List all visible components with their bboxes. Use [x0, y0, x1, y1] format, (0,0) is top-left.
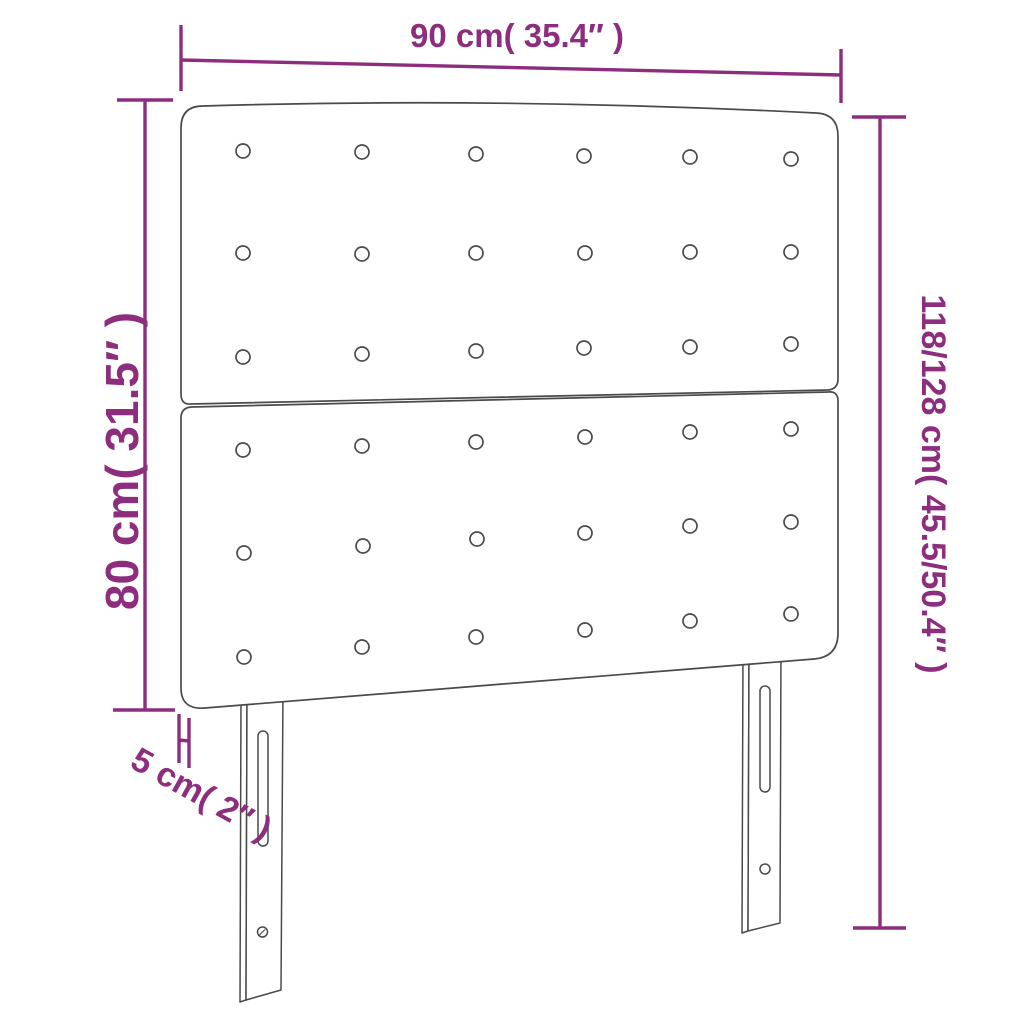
tufting-button: [237, 546, 251, 560]
tufting-button: [578, 526, 592, 540]
tufting-button: [469, 435, 483, 449]
tufting-button: [236, 144, 250, 158]
headboard-top-panel: [181, 103, 838, 404]
tufting-button: [355, 247, 369, 261]
tufting-button: [577, 149, 591, 163]
headboard-diagram-svg: 90 cm( 35.4″ ) 118/128 cm( 45.5/50.4″ ) …: [0, 0, 1024, 1024]
tufting-button: [683, 150, 697, 164]
tufting-button: [355, 640, 369, 654]
tufting-button: [578, 623, 592, 637]
thickness-crossbar: [179, 740, 189, 741]
width-dimension-label: 90 cm( 35.4″ ): [410, 17, 624, 54]
tufting-button: [469, 246, 483, 260]
tufting-button: [469, 344, 483, 358]
right-leg-slot: [760, 686, 770, 792]
total-height-dimension-label: 118/128 cm( 45.5/50.4″ ): [914, 294, 952, 673]
tufting-button: [683, 614, 697, 628]
width-dimension: 90 cm( 35.4″ ): [181, 17, 841, 103]
tufting-button: [355, 347, 369, 361]
tufting-button: [470, 532, 484, 546]
tufting-button: [355, 145, 369, 159]
tufting-button: [784, 422, 798, 436]
tufting-button: [355, 439, 369, 453]
left-leg: [240, 690, 283, 1002]
tufting-button: [578, 246, 592, 260]
tufting-button: [683, 519, 697, 533]
width-dimension-line: [181, 60, 841, 75]
tufting-button: [236, 246, 250, 260]
tufting-button: [784, 607, 798, 621]
tufting-button: [683, 245, 697, 259]
tufting-button: [784, 515, 798, 529]
tufting-button: [578, 430, 592, 444]
board-height-dimension-label: 80 cm( 31.5″ ): [96, 312, 148, 610]
tufting-button: [469, 630, 483, 644]
tufting-button: [236, 443, 250, 457]
tufting-button: [683, 340, 697, 354]
tufting-button: [237, 650, 251, 664]
tufting-button: [236, 350, 250, 364]
headboard-bottom-panel: [181, 392, 838, 708]
tufting-button: [469, 147, 483, 161]
tufting-button: [784, 337, 798, 351]
total-height-dimension: 118/128 cm( 45.5/50.4″ ): [852, 117, 952, 928]
tufting-button: [784, 245, 798, 259]
tufting-button: [784, 152, 798, 166]
right-leg-hole: [760, 864, 770, 874]
right-leg: [742, 647, 781, 933]
tufting-button: [683, 425, 697, 439]
tufting-button: [356, 539, 370, 553]
board-height-dimension: 80 cm( 31.5″ ): [96, 100, 175, 710]
dimension-diagram: 90 cm( 35.4″ ) 118/128 cm( 45.5/50.4″ ) …: [0, 0, 1024, 1024]
tufting-button: [577, 341, 591, 355]
